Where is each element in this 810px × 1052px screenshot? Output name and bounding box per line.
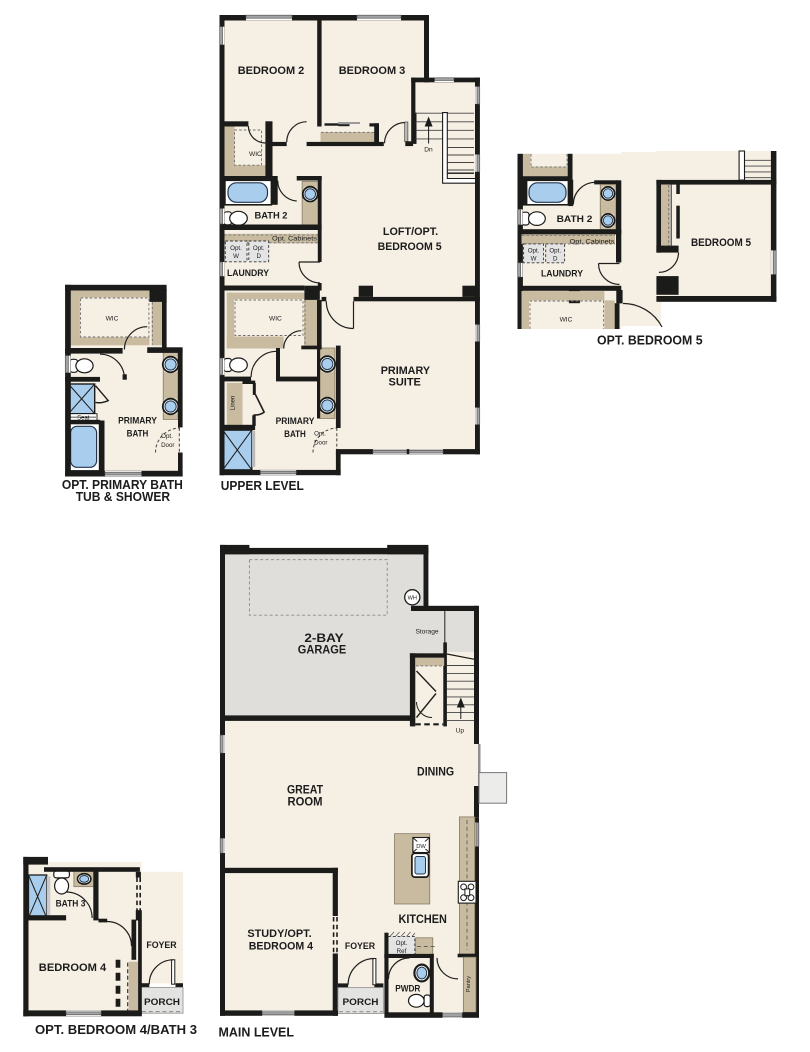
svg-text:BATH 2: BATH 2 <box>557 214 593 224</box>
svg-text:BEDROOM 2: BEDROOM 2 <box>238 65 305 77</box>
svg-text:UPPER LEVEL: UPPER LEVEL <box>221 478 304 493</box>
svg-text:BATH: BATH <box>127 428 149 439</box>
svg-text:W: W <box>531 255 537 262</box>
svg-text:Door: Door <box>161 442 174 449</box>
svg-text:WH: WH <box>408 596 417 602</box>
svg-text:Opt.: Opt. <box>161 433 173 440</box>
svg-text:WIC: WIC <box>269 316 282 323</box>
svg-text:D: D <box>553 255 558 262</box>
svg-text:Pantry: Pantry <box>466 976 472 992</box>
svg-text:WIC: WIC <box>560 317 573 324</box>
svg-text:MAIN LEVEL: MAIN LEVEL <box>219 1025 295 1040</box>
svg-text:BEDROOM 5: BEDROOM 5 <box>378 241 442 253</box>
svg-text:PORCH: PORCH <box>144 997 180 1007</box>
svg-text:LAUNDRY: LAUNDRY <box>541 268 583 278</box>
svg-text:BEDROOM 4: BEDROOM 4 <box>249 941 314 953</box>
svg-text:OPT. BEDROOM 5: OPT. BEDROOM 5 <box>597 333 703 348</box>
svg-text:SUITE: SUITE <box>389 377 422 389</box>
svg-text:FOYER: FOYER <box>345 941 376 951</box>
svg-text:PRIMARY: PRIMARY <box>118 415 157 426</box>
svg-text:TUB & SHOWER: TUB & SHOWER <box>76 489 171 504</box>
svg-text:DINING: DINING <box>417 765 454 779</box>
svg-text:WIC: WIC <box>106 316 119 323</box>
svg-text:BATH 2: BATH 2 <box>255 211 288 221</box>
svg-text:LAUNDRY: LAUNDRY <box>227 268 269 278</box>
svg-text:Opt. Cabinets: Opt. Cabinets <box>272 236 318 243</box>
svg-text:PRIMARY: PRIMARY <box>381 365 431 377</box>
svg-text:BEDROOM 4: BEDROOM 4 <box>39 962 107 974</box>
svg-text:Up: Up <box>456 728 465 735</box>
svg-text:Opt.: Opt. <box>396 940 408 947</box>
svg-text:FOYER: FOYER <box>146 940 177 950</box>
svg-text:D: D <box>256 253 261 260</box>
svg-text:Door: Door <box>314 440 327 447</box>
svg-text:Opt.: Opt. <box>528 247 540 254</box>
svg-text:BEDROOM 5: BEDROOM 5 <box>691 237 751 249</box>
svg-text:BEDROOM 3: BEDROOM 3 <box>339 65 406 77</box>
svg-text:Opt.: Opt. <box>549 247 561 254</box>
svg-text:W: W <box>233 253 239 260</box>
svg-text:ROOM: ROOM <box>288 795 323 809</box>
svg-text:BATH: BATH <box>284 428 306 439</box>
svg-text:Storage: Storage <box>415 629 438 636</box>
svg-text:PWDR: PWDR <box>395 984 421 994</box>
svg-text:Opt.: Opt. <box>230 245 242 252</box>
svg-text:GARAGE: GARAGE <box>298 643 346 657</box>
svg-text:LOFT/OPT.: LOFT/OPT. <box>383 226 438 238</box>
svg-text:BATH 3: BATH 3 <box>56 899 86 909</box>
svg-text:STUDY/OPT.: STUDY/OPT. <box>247 928 311 940</box>
svg-text:WIC: WIC <box>249 151 262 158</box>
svg-text:Dn: Dn <box>424 147 433 154</box>
svg-text:PRIMARY: PRIMARY <box>276 415 315 426</box>
svg-text:DW: DW <box>416 844 426 850</box>
svg-text:PORCH: PORCH <box>343 997 379 1007</box>
svg-text:Linen: Linen <box>231 396 237 411</box>
svg-text:OPT. BEDROOM 4/BATH 3: OPT. BEDROOM 4/BATH 3 <box>35 1022 197 1037</box>
svg-text:Opt.: Opt. <box>314 431 326 438</box>
svg-text:Opt.: Opt. <box>253 245 265 252</box>
svg-text:KITCHEN: KITCHEN <box>399 912 447 926</box>
svg-text:Opt. Cabinets: Opt. Cabinets <box>570 238 616 245</box>
